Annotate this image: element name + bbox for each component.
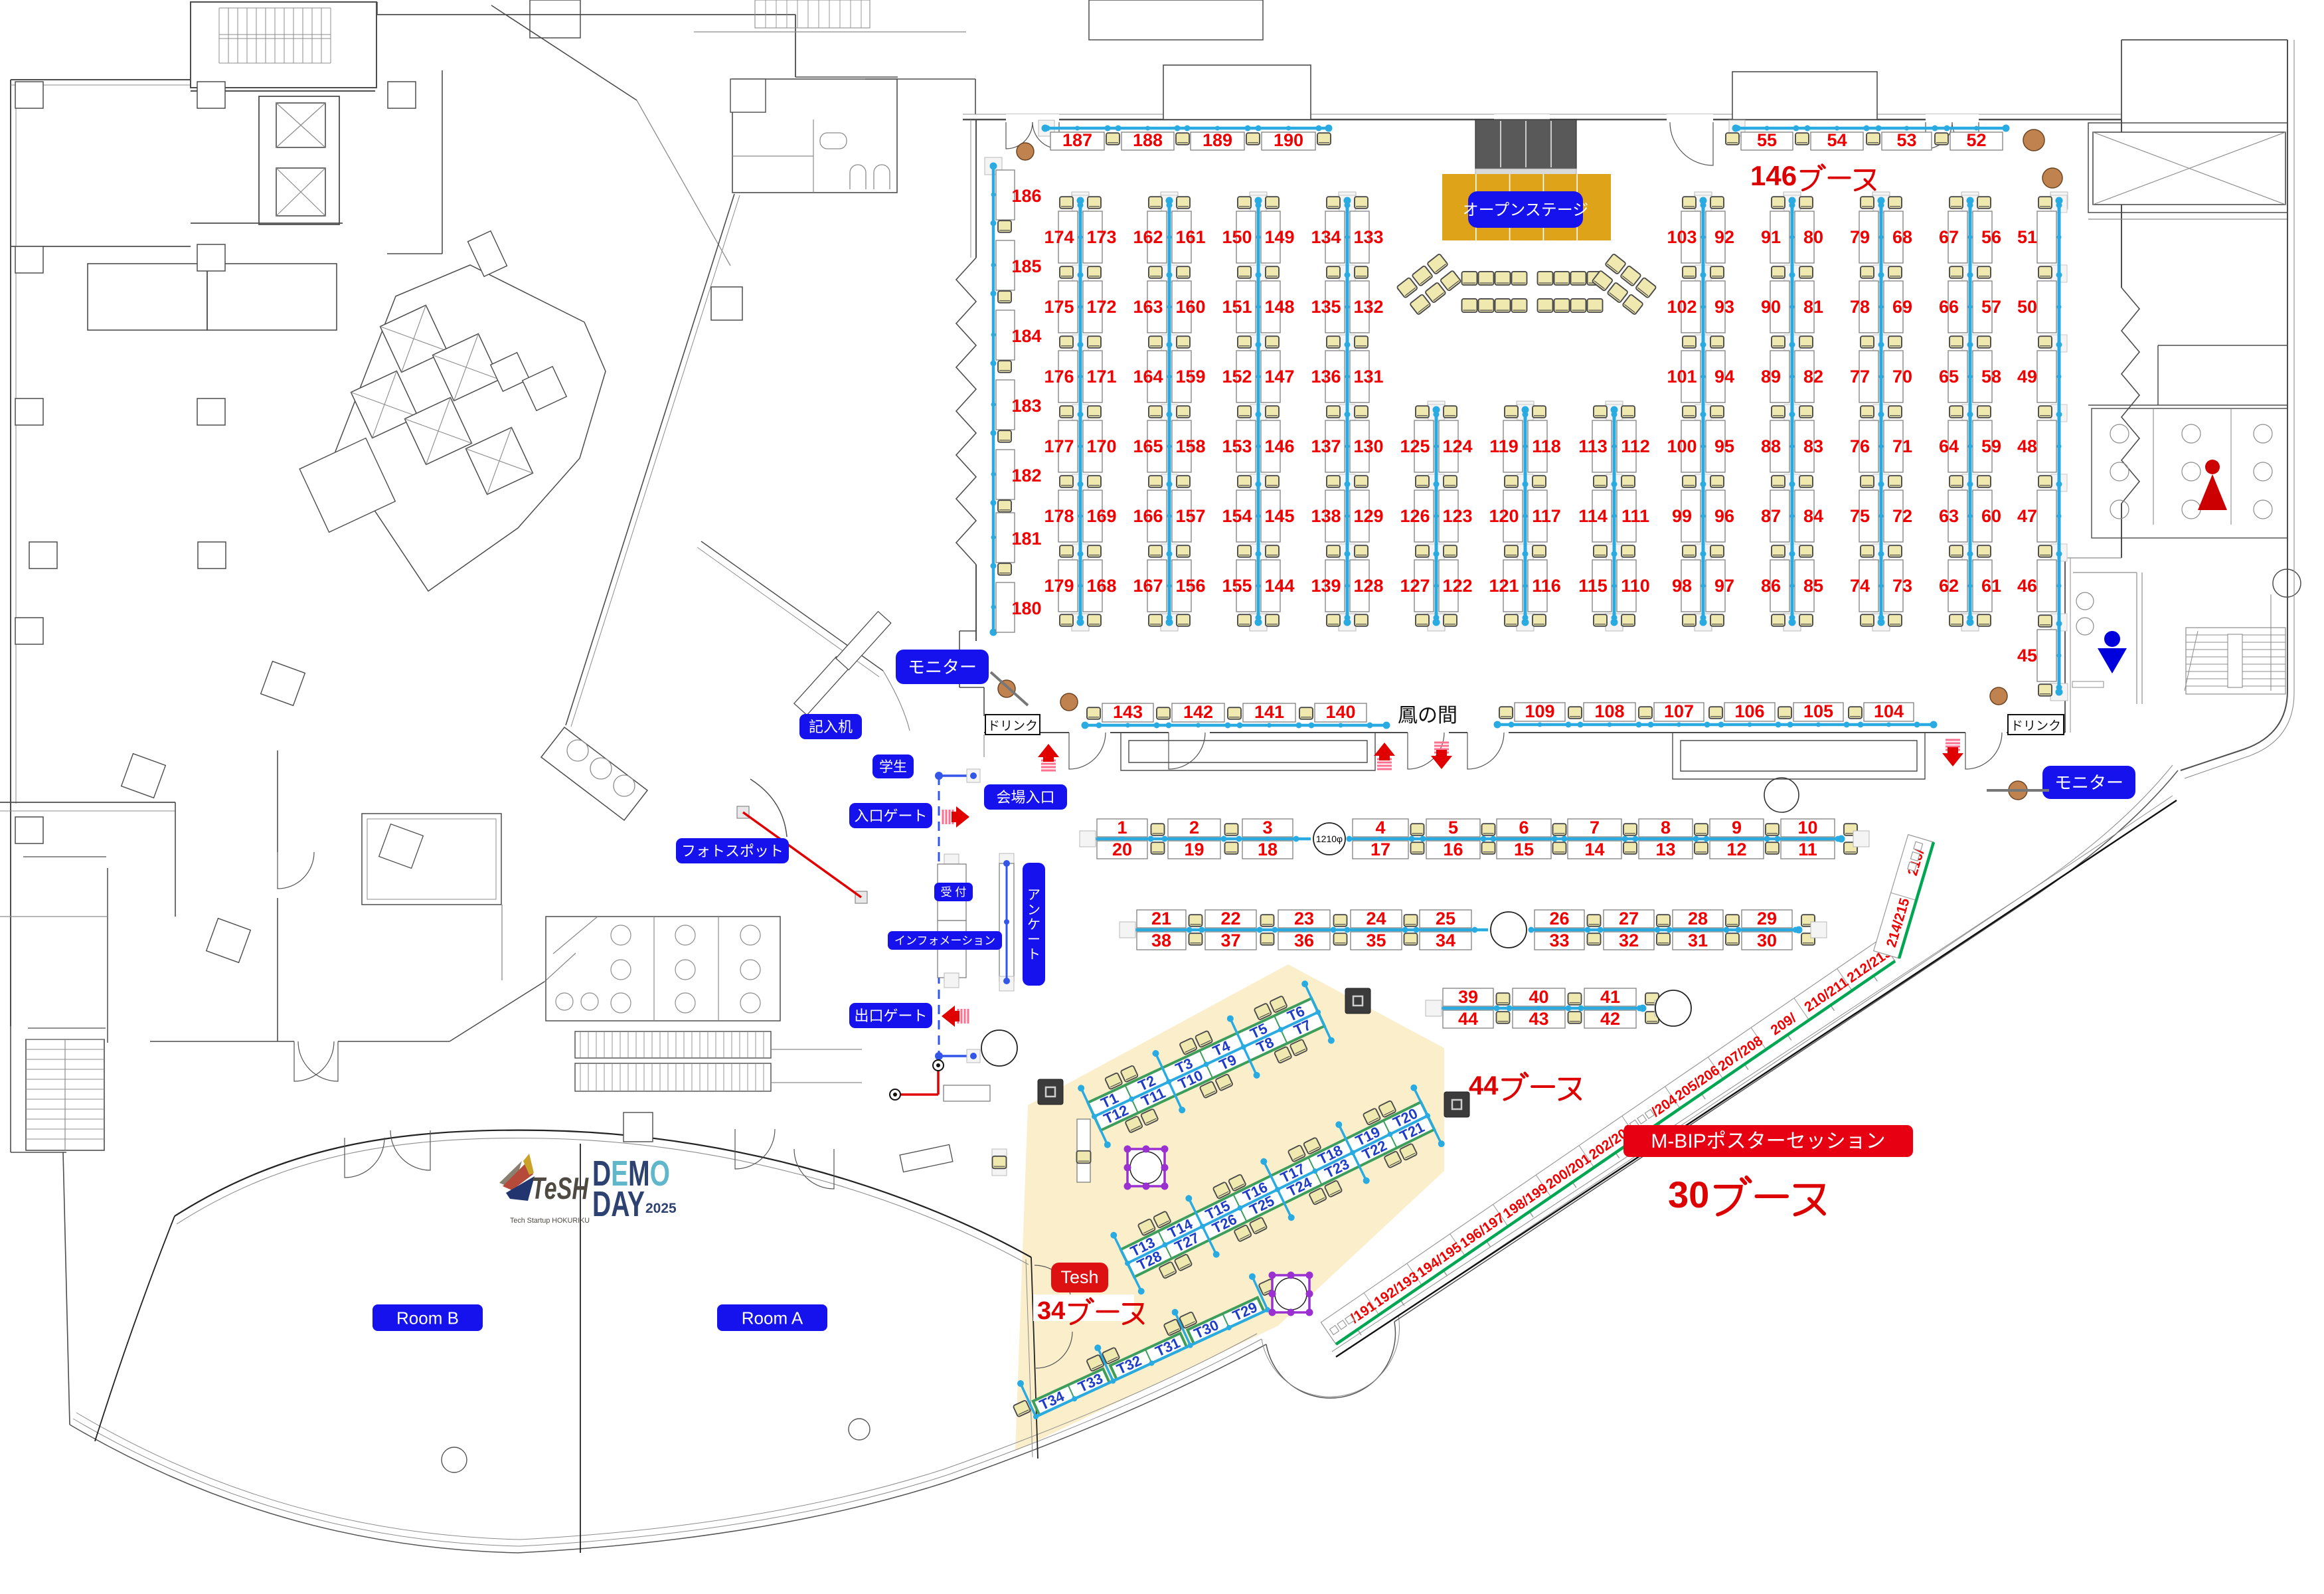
- svg-text:126: 126: [1400, 506, 1430, 526]
- svg-text:78: 78: [1850, 297, 1870, 317]
- svg-text:42: 42: [1600, 1009, 1620, 1029]
- svg-text:144: 144: [1264, 576, 1294, 596]
- svg-text:73: 73: [1892, 576, 1912, 596]
- svg-text:16: 16: [1443, 840, 1463, 859]
- svg-text:105: 105: [1803, 701, 1833, 721]
- svg-text:68: 68: [1892, 227, 1912, 247]
- svg-text:34: 34: [1436, 930, 1455, 950]
- svg-text:44: 44: [1469, 1071, 1499, 1101]
- svg-text:171: 171: [1086, 367, 1116, 387]
- svg-text:13: 13: [1655, 840, 1675, 859]
- svg-text:124: 124: [1442, 436, 1472, 456]
- svg-text:Tesh: Tesh: [1060, 1267, 1098, 1287]
- svg-text:175: 175: [1044, 297, 1074, 317]
- svg-text:38: 38: [1151, 930, 1171, 950]
- svg-text:125: 125: [1400, 436, 1430, 456]
- svg-text:4: 4: [1375, 818, 1385, 838]
- svg-text:受 付: 受 付: [941, 886, 967, 899]
- svg-text:127: 127: [1400, 576, 1430, 596]
- svg-text:80: 80: [1803, 227, 1823, 247]
- svg-text:158: 158: [1175, 436, 1205, 456]
- svg-text:151: 151: [1222, 297, 1252, 317]
- svg-text:55: 55: [1757, 130, 1777, 150]
- svg-text:159: 159: [1175, 367, 1205, 387]
- svg-text:102: 102: [1667, 297, 1697, 317]
- svg-text:入口ゲート: 入口ゲート: [854, 808, 927, 824]
- svg-text:58: 58: [1981, 367, 2001, 387]
- svg-text:モニター: モニター: [2054, 772, 2123, 792]
- svg-text:150: 150: [1222, 227, 1252, 247]
- svg-text:3: 3: [1262, 818, 1272, 838]
- svg-text:DAY: DAY: [592, 1184, 645, 1224]
- svg-text:Tech Startup HOKURIKU: Tech Startup HOKURIKU: [510, 1217, 590, 1225]
- svg-text:75: 75: [1850, 506, 1870, 526]
- svg-text:41: 41: [1600, 987, 1620, 1007]
- svg-text:92: 92: [1714, 227, 1734, 247]
- svg-text:188: 188: [1133, 130, 1163, 150]
- svg-text:59: 59: [1981, 436, 2001, 456]
- svg-text:174: 174: [1044, 227, 1074, 247]
- svg-text:Room B: Room B: [396, 1308, 459, 1328]
- svg-text:109: 109: [1525, 701, 1554, 721]
- svg-text:167: 167: [1133, 576, 1163, 596]
- svg-text:168: 168: [1086, 576, 1116, 596]
- svg-text:157: 157: [1175, 506, 1205, 526]
- svg-text:115: 115: [1578, 576, 1608, 596]
- svg-text:36: 36: [1294, 930, 1314, 950]
- svg-text:10: 10: [1797, 818, 1817, 838]
- svg-text:81: 81: [1803, 297, 1823, 317]
- svg-text:82: 82: [1803, 367, 1823, 387]
- svg-text:39: 39: [1458, 987, 1478, 1007]
- svg-text:32: 32: [1619, 930, 1639, 950]
- svg-text:17: 17: [1370, 840, 1390, 859]
- svg-text:128: 128: [1353, 576, 1383, 596]
- svg-text:114: 114: [1578, 506, 1608, 526]
- svg-text:149: 149: [1264, 227, 1294, 247]
- svg-text:46: 46: [2017, 576, 2037, 596]
- svg-text:190: 190: [1274, 130, 1303, 150]
- svg-text:25: 25: [1436, 909, 1455, 929]
- svg-text:108: 108: [1594, 701, 1624, 721]
- svg-text:記入机: 記入机: [809, 719, 853, 735]
- svg-text:49: 49: [2017, 367, 2037, 387]
- svg-text:86: 86: [1761, 576, 1781, 596]
- svg-text:154: 154: [1222, 506, 1252, 526]
- svg-text:138: 138: [1311, 506, 1341, 526]
- svg-text:146: 146: [1264, 436, 1294, 456]
- svg-text:21: 21: [1151, 909, 1171, 929]
- svg-text:24: 24: [1366, 909, 1386, 929]
- svg-text:2: 2: [1189, 818, 1199, 838]
- svg-text:123: 123: [1442, 506, 1472, 526]
- svg-text:161: 161: [1175, 227, 1205, 247]
- svg-text:117: 117: [1532, 506, 1561, 526]
- svg-text:2025: 2025: [645, 1201, 677, 1216]
- svg-text:52: 52: [1966, 130, 1986, 150]
- svg-text:1: 1: [1117, 818, 1127, 838]
- svg-text:76: 76: [1850, 436, 1870, 456]
- svg-text:12: 12: [1726, 840, 1746, 859]
- svg-text:119: 119: [1489, 436, 1519, 456]
- svg-text:152: 152: [1222, 367, 1252, 387]
- svg-text:57: 57: [1981, 297, 2001, 317]
- svg-text:181: 181: [1011, 529, 1041, 549]
- svg-text:83: 83: [1803, 436, 1823, 456]
- svg-text:6: 6: [1519, 818, 1529, 838]
- svg-text:23: 23: [1294, 909, 1314, 929]
- svg-text:155: 155: [1222, 576, 1252, 596]
- svg-text:118: 118: [1532, 436, 1561, 456]
- svg-text:186: 186: [1011, 186, 1041, 206]
- svg-text:189: 189: [1203, 130, 1232, 150]
- svg-text:107: 107: [1664, 701, 1694, 721]
- svg-text:98: 98: [1672, 576, 1692, 596]
- svg-text:ト: ト: [1027, 948, 1040, 962]
- svg-text:61: 61: [1981, 576, 2001, 596]
- svg-text:116: 116: [1532, 576, 1561, 596]
- svg-text:ケ: ケ: [1027, 918, 1040, 932]
- svg-text:44: 44: [1458, 1009, 1478, 1029]
- svg-text:111: 111: [1621, 506, 1649, 526]
- svg-text:103: 103: [1667, 227, 1697, 247]
- svg-text:TeSH: TeSH: [531, 1171, 589, 1205]
- svg-text:141: 141: [1254, 702, 1284, 722]
- svg-text:130: 130: [1353, 436, 1383, 456]
- svg-text:139: 139: [1311, 576, 1341, 596]
- svg-text:22: 22: [1220, 909, 1240, 929]
- svg-text:30: 30: [1668, 1174, 1709, 1215]
- svg-text:160: 160: [1175, 297, 1205, 317]
- svg-text:79: 79: [1850, 227, 1870, 247]
- svg-text:99: 99: [1672, 506, 1692, 526]
- svg-text:37: 37: [1220, 930, 1240, 950]
- svg-text:67: 67: [1939, 227, 1959, 247]
- svg-text:60: 60: [1981, 506, 2001, 526]
- svg-text:学生: 学生: [879, 760, 907, 775]
- svg-text:69: 69: [1892, 297, 1912, 317]
- svg-text:26: 26: [1549, 909, 1569, 929]
- svg-text:182: 182: [1011, 466, 1041, 486]
- svg-text:66: 66: [1939, 297, 1959, 317]
- svg-text:54: 54: [1827, 130, 1847, 150]
- svg-text:129: 129: [1353, 506, 1383, 526]
- svg-text:131: 131: [1353, 367, 1383, 387]
- svg-text:140: 140: [1325, 702, 1355, 722]
- svg-text:オープンステージ: オープンステージ: [1463, 201, 1589, 219]
- svg-text:7: 7: [1590, 818, 1600, 838]
- svg-text:187: 187: [1062, 130, 1092, 150]
- svg-text:84: 84: [1803, 506, 1823, 526]
- svg-text:29: 29: [1757, 909, 1777, 929]
- svg-text:87: 87: [1761, 506, 1781, 526]
- svg-text:45: 45: [2017, 646, 2037, 665]
- svg-text:15: 15: [1514, 840, 1534, 859]
- svg-text:33: 33: [1549, 930, 1569, 950]
- svg-text:11: 11: [1798, 840, 1817, 859]
- svg-text:142: 142: [1183, 702, 1213, 722]
- svg-text:110: 110: [1621, 576, 1650, 596]
- svg-text:164: 164: [1133, 367, 1163, 387]
- svg-text:47: 47: [2017, 506, 2037, 526]
- svg-text:97: 97: [1714, 576, 1734, 596]
- svg-text:153: 153: [1222, 436, 1252, 456]
- svg-text:50: 50: [2017, 297, 2037, 317]
- svg-text:147: 147: [1264, 367, 1294, 387]
- svg-text:178: 178: [1044, 506, 1074, 526]
- svg-text:104: 104: [1874, 701, 1904, 721]
- svg-text:フォトスポット: フォトスポット: [681, 843, 784, 859]
- svg-text:185: 185: [1011, 256, 1041, 276]
- svg-text:132: 132: [1353, 297, 1383, 317]
- svg-text:インフォメーション: インフォメーション: [894, 934, 995, 947]
- svg-text:88: 88: [1761, 436, 1781, 456]
- svg-text:135: 135: [1311, 297, 1341, 317]
- svg-text:43: 43: [1529, 1009, 1548, 1029]
- svg-text:106: 106: [1734, 701, 1764, 721]
- svg-text:100: 100: [1667, 436, 1697, 456]
- svg-text:89: 89: [1761, 367, 1781, 387]
- svg-text:90: 90: [1761, 297, 1781, 317]
- svg-text:95: 95: [1714, 436, 1734, 456]
- svg-text:34: 34: [1037, 1297, 1065, 1325]
- svg-text:134: 134: [1311, 227, 1341, 247]
- svg-text:70: 70: [1892, 367, 1912, 387]
- svg-text:53: 53: [1896, 130, 1916, 150]
- svg-text:145: 145: [1264, 506, 1294, 526]
- svg-text:170: 170: [1086, 436, 1116, 456]
- svg-text:30: 30: [1757, 930, 1777, 950]
- svg-text:64: 64: [1939, 436, 1959, 456]
- svg-text:63: 63: [1939, 506, 1959, 526]
- svg-text:169: 169: [1086, 506, 1116, 526]
- svg-text:40: 40: [1529, 987, 1548, 1007]
- svg-text:156: 156: [1175, 576, 1205, 596]
- svg-text:137: 137: [1311, 436, 1341, 456]
- svg-text:122: 122: [1442, 576, 1472, 596]
- svg-text:モニター: モニター: [908, 657, 977, 677]
- svg-text:M-BIPポスターセッション: M-BIPポスターセッション: [1651, 1130, 1885, 1152]
- svg-text:18: 18: [1258, 840, 1278, 859]
- svg-text:48: 48: [2017, 436, 2037, 456]
- svg-text:ドリンク: ドリンク: [2011, 719, 2061, 733]
- svg-text:ア: ア: [1027, 888, 1040, 903]
- svg-text:165: 165: [1133, 436, 1163, 456]
- svg-text:172: 172: [1086, 297, 1116, 317]
- svg-text:101: 101: [1667, 367, 1697, 387]
- svg-text:71: 71: [1892, 436, 1912, 456]
- svg-text:179: 179: [1044, 576, 1074, 596]
- svg-text:19: 19: [1184, 840, 1204, 859]
- svg-text:14: 14: [1584, 840, 1604, 859]
- svg-text:56: 56: [1981, 227, 2001, 247]
- svg-text:120: 120: [1489, 506, 1519, 526]
- svg-text:183: 183: [1011, 396, 1041, 416]
- svg-text:62: 62: [1939, 576, 1959, 596]
- svg-text:173: 173: [1086, 227, 1116, 247]
- svg-text:Room A: Room A: [742, 1308, 803, 1328]
- svg-text:94: 94: [1714, 367, 1734, 387]
- svg-text:会場入口: 会場入口: [996, 789, 1054, 806]
- svg-text:ン: ン: [1027, 903, 1040, 917]
- svg-text:鳳の間: 鳳の間: [1398, 705, 1457, 727]
- svg-text:20: 20: [1112, 840, 1132, 859]
- svg-text:ー: ー: [1027, 932, 1040, 947]
- svg-text:121: 121: [1489, 576, 1519, 596]
- svg-text:ドリンク: ドリンク: [987, 719, 1038, 733]
- svg-text:65: 65: [1939, 367, 1959, 387]
- svg-text:1210φ: 1210φ: [1316, 834, 1343, 844]
- svg-text:162: 162: [1133, 227, 1163, 247]
- svg-text:31: 31: [1688, 930, 1708, 950]
- svg-text:51: 51: [2017, 227, 2037, 247]
- svg-text:35: 35: [1366, 930, 1386, 950]
- svg-text:5: 5: [1448, 818, 1458, 838]
- svg-text:8: 8: [1661, 818, 1671, 838]
- svg-text:85: 85: [1803, 576, 1823, 596]
- svg-text:27: 27: [1619, 909, 1639, 929]
- svg-text:136: 136: [1311, 367, 1341, 387]
- svg-text:163: 163: [1133, 297, 1163, 317]
- svg-text:146: 146: [1750, 160, 1797, 191]
- svg-text:166: 166: [1133, 506, 1163, 526]
- svg-text:72: 72: [1892, 506, 1912, 526]
- svg-text:143: 143: [1113, 702, 1143, 722]
- svg-text:77: 77: [1850, 367, 1870, 387]
- svg-text:176: 176: [1044, 367, 1074, 387]
- svg-text:9: 9: [1732, 818, 1742, 838]
- svg-text:184: 184: [1011, 326, 1041, 346]
- svg-text:177: 177: [1044, 436, 1074, 456]
- svg-text:112: 112: [1621, 436, 1650, 456]
- svg-text:91: 91: [1761, 227, 1781, 247]
- svg-text:74: 74: [1850, 576, 1870, 596]
- svg-text:93: 93: [1714, 297, 1734, 317]
- svg-text:96: 96: [1714, 506, 1734, 526]
- svg-text:133: 133: [1353, 227, 1383, 247]
- svg-text:出口ゲート: 出口ゲート: [854, 1008, 927, 1024]
- svg-text:180: 180: [1011, 598, 1041, 618]
- svg-text:148: 148: [1264, 297, 1294, 317]
- svg-text:113: 113: [1578, 436, 1608, 456]
- svg-text:28: 28: [1688, 909, 1708, 929]
